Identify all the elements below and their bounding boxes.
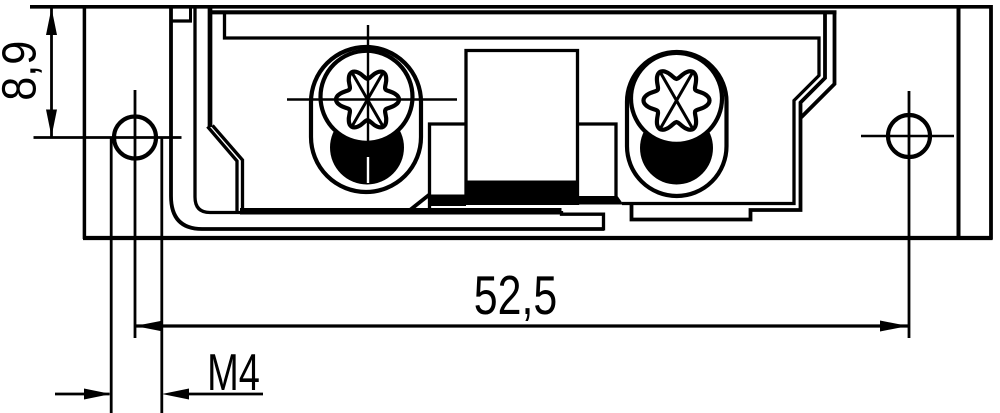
svg-text:52,5: 52,5 xyxy=(474,265,557,326)
svg-text:8,9: 8,9 xyxy=(0,41,46,101)
svg-text:M4: M4 xyxy=(207,343,260,401)
